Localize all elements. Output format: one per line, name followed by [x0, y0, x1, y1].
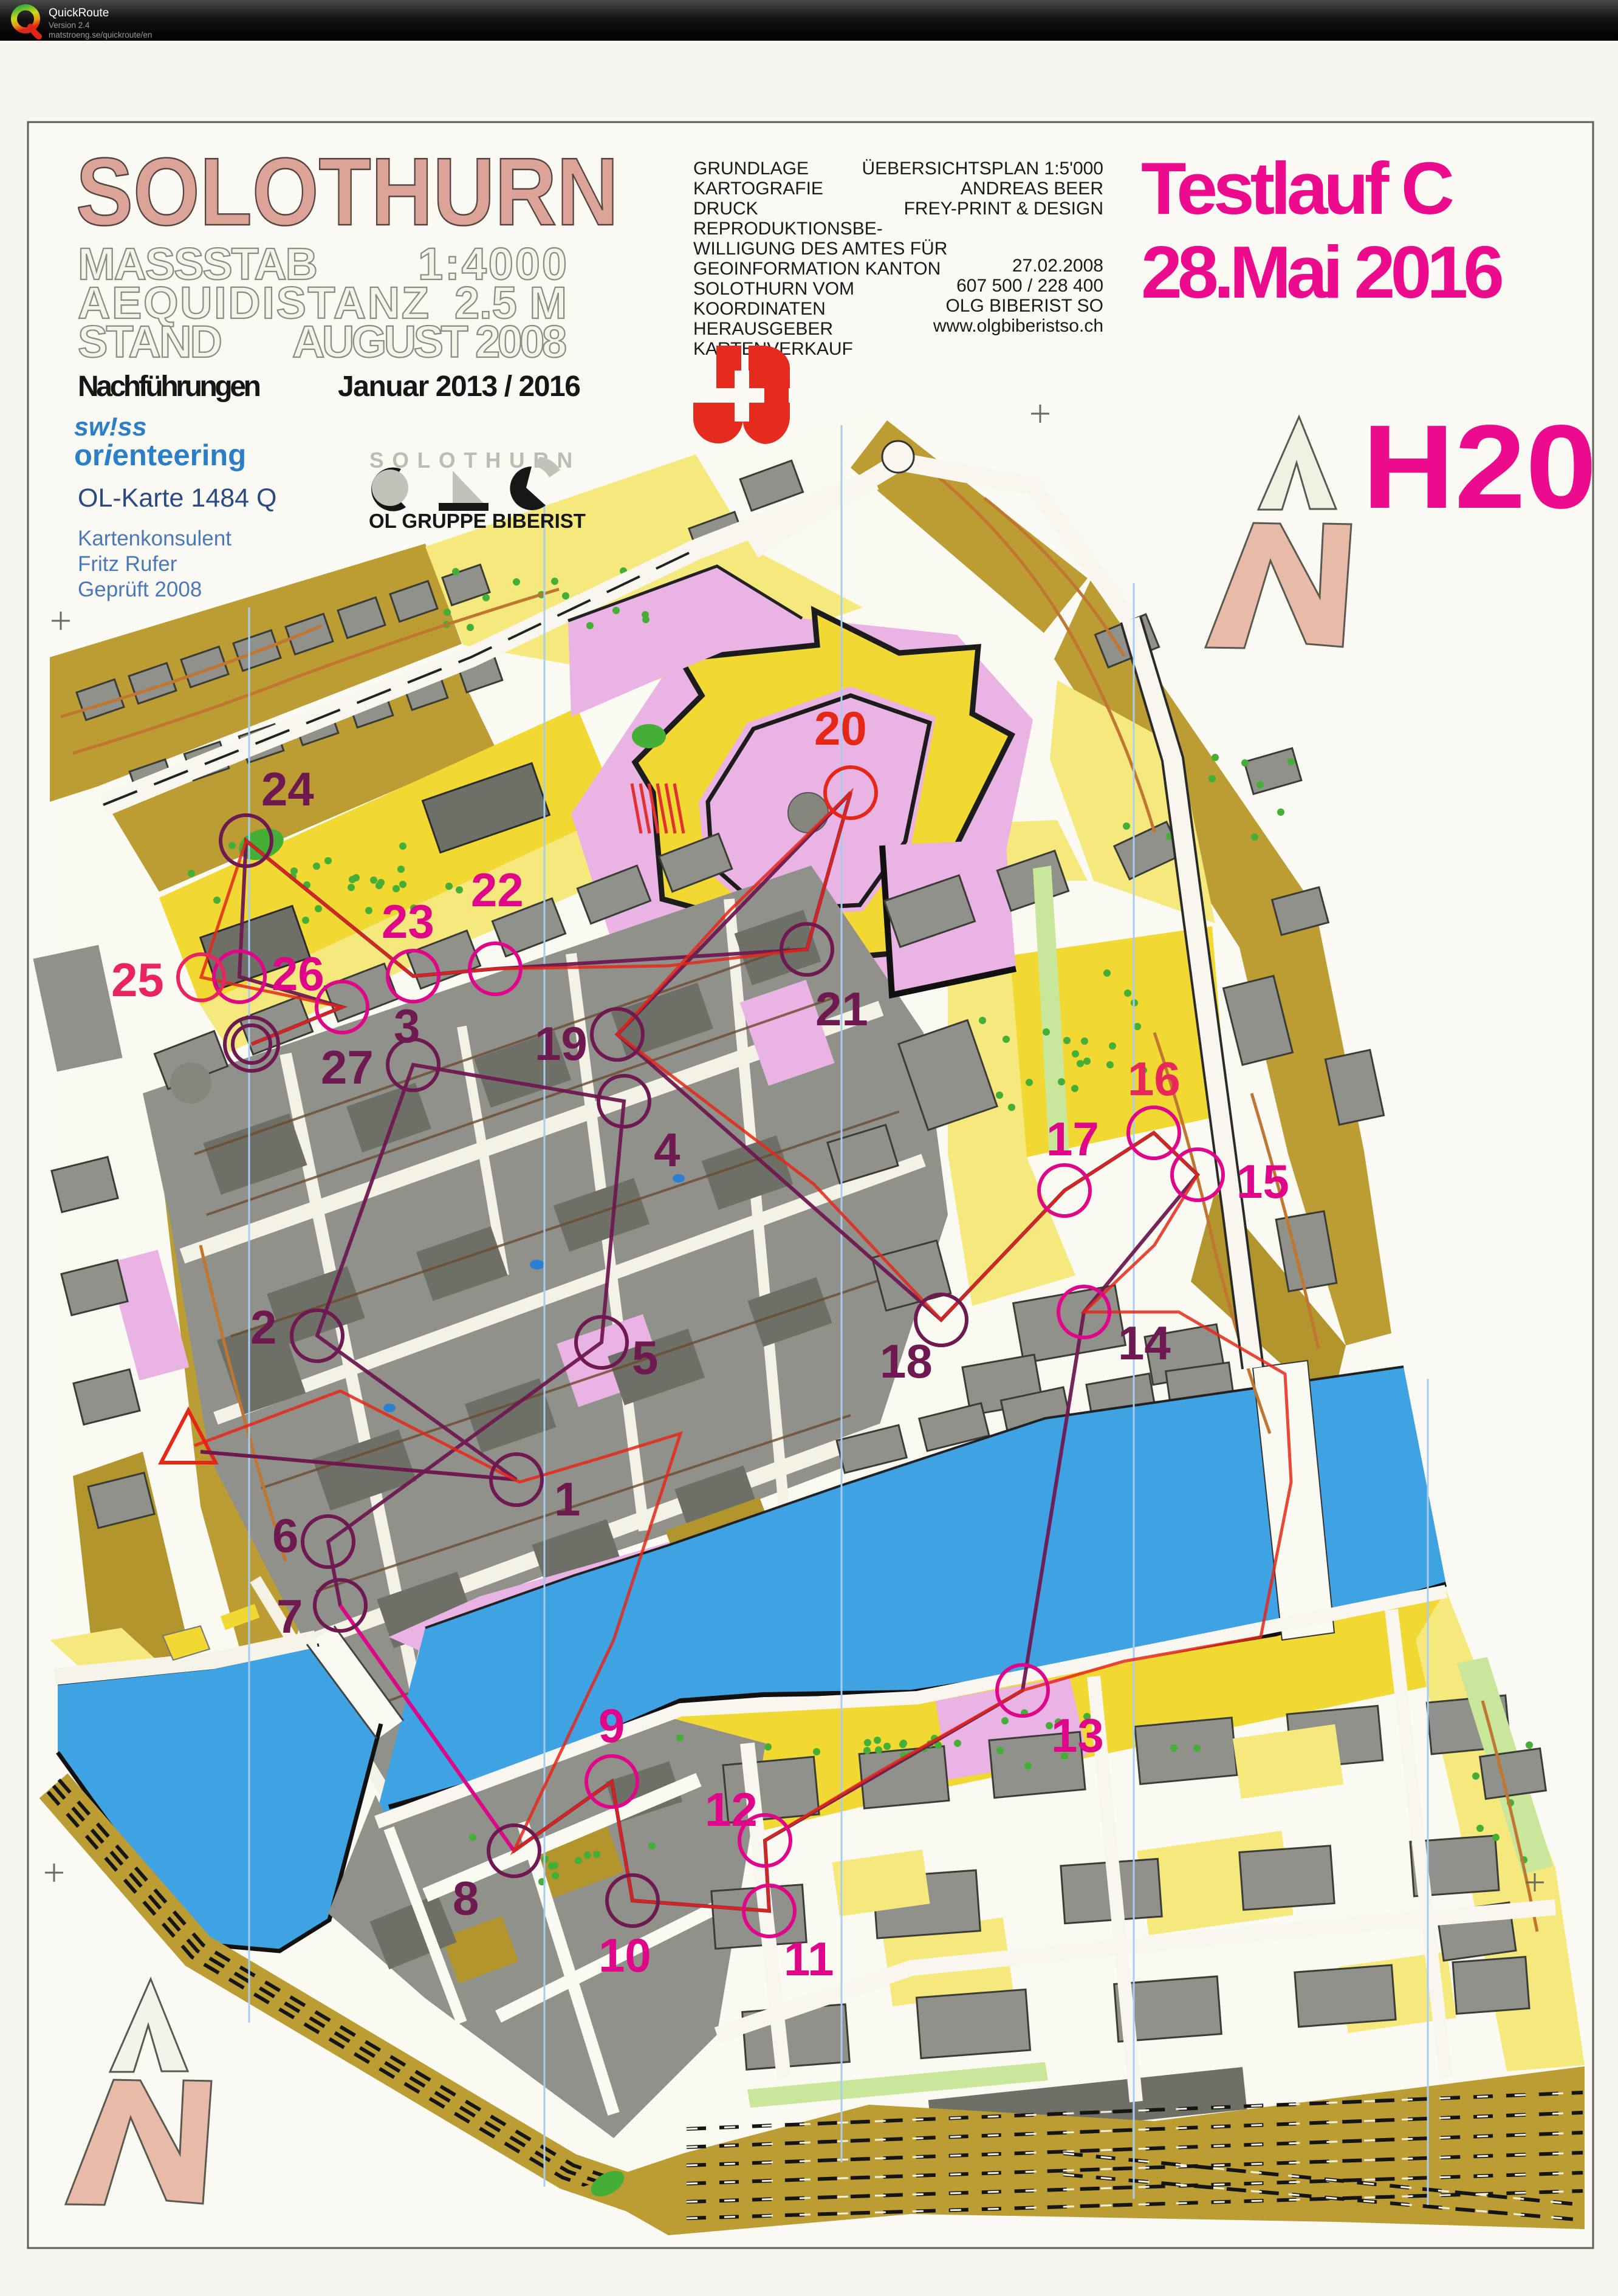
svg-text:OL GRUPPE BIBERIST: OL GRUPPE BIBERIST — [369, 510, 586, 532]
svg-text:7: 7 — [276, 1590, 303, 1643]
svg-text:25: 25 — [111, 953, 164, 1006]
svg-text:10: 10 — [598, 1929, 651, 1982]
svg-text:22: 22 — [471, 863, 524, 917]
svg-text:607 500 / 228 400: 607 500 / 228 400 — [956, 276, 1103, 296]
svg-text:14: 14 — [1118, 1316, 1171, 1370]
svg-text:4: 4 — [654, 1123, 680, 1177]
svg-text:8: 8 — [453, 1871, 479, 1925]
svg-text:28.Mai 2016: 28.Mai 2016 — [1141, 231, 1504, 313]
svg-text:KOORDINATEN: KOORDINATEN — [693, 299, 826, 319]
svg-text:Nachführungen: Nachführungen — [78, 371, 261, 403]
svg-text:KARTOGRAFIE: KARTOGRAFIE — [693, 179, 823, 199]
svg-text:16: 16 — [1128, 1052, 1181, 1105]
svg-text:27: 27 — [321, 1040, 374, 1094]
svg-text:18: 18 — [880, 1334, 933, 1388]
svg-text:2: 2 — [250, 1300, 276, 1354]
svg-text:sw!ss: sw!ss — [74, 412, 147, 442]
svg-text:HERAUSGEBER: HERAUSGEBER — [693, 319, 833, 339]
svg-text:21: 21 — [815, 982, 868, 1036]
svg-text:SOLOTHURN: SOLOTHURN — [76, 138, 619, 245]
svg-text:DRUCK: DRUCK — [693, 199, 758, 219]
svg-text:11: 11 — [784, 1932, 834, 1986]
svg-text:Januar 2013 / 2016: Januar 2013 / 2016 — [338, 371, 581, 403]
svg-text:Kartenkonsulent: Kartenkonsulent — [78, 527, 231, 550]
svg-text:26: 26 — [272, 947, 324, 1000]
svg-text:19: 19 — [535, 1017, 588, 1070]
svg-text:6: 6 — [272, 1509, 298, 1562]
svg-text:OLG BIBERIST SO: OLG BIBERIST SO — [945, 296, 1103, 316]
svg-text:STAND: STAND — [78, 316, 222, 367]
svg-text:Fritz Rufer: Fritz Rufer — [78, 552, 177, 576]
svg-text:OL-Karte 1484 Q: OL-Karte 1484 Q — [78, 483, 276, 513]
svg-text:orienteering: orienteering — [74, 439, 246, 472]
svg-text:20: 20 — [814, 702, 867, 755]
svg-text:3: 3 — [394, 999, 420, 1053]
svg-text:17: 17 — [1046, 1112, 1099, 1166]
svg-text:WILLIGUNG DES AMTES FÜR: WILLIGUNG DES AMTES FÜR — [693, 239, 947, 259]
svg-text:www.olgbiberistso.ch: www.olgbiberistso.ch — [933, 316, 1103, 336]
svg-text:matstroeng.se/quickroute/en: matstroeng.se/quickroute/en — [49, 30, 152, 39]
svg-text:GRUNDLAGE: GRUNDLAGE — [693, 159, 809, 179]
svg-text:5: 5 — [632, 1331, 658, 1384]
svg-text:Testlauf C: Testlauf C — [1141, 147, 1455, 230]
svg-text:QuickRoute: QuickRoute — [49, 7, 109, 19]
svg-text:13: 13 — [1051, 1709, 1104, 1762]
svg-text:24: 24 — [261, 762, 314, 816]
svg-text:Geprüft 2008: Geprüft 2008 — [78, 578, 202, 601]
svg-text:1: 1 — [554, 1472, 580, 1526]
svg-text:REPRODUKTIONSBE-: REPRODUKTIONSBE- — [693, 219, 883, 239]
svg-text:GEOINFORMATION KANTON: GEOINFORMATION KANTON — [693, 259, 941, 279]
svg-text:15: 15 — [1236, 1155, 1289, 1208]
svg-text:SOLOTHURN VOM: SOLOTHURN VOM — [693, 279, 854, 299]
svg-text:9: 9 — [598, 1699, 625, 1752]
svg-text:FREY-PRINT & DESIGN: FREY-PRINT & DESIGN — [904, 199, 1103, 219]
svg-text:ANDREAS BEER: ANDREAS BEER — [961, 179, 1103, 199]
svg-text:23: 23 — [382, 895, 434, 948]
svg-text:ÜEBERSICHTSPLAN 1:5'000: ÜEBERSICHTSPLAN 1:5'000 — [862, 159, 1103, 179]
svg-text:AUGUST 2008: AUGUST 2008 — [292, 316, 567, 367]
svg-text:Version 2.4: Version 2.4 — [49, 21, 90, 30]
svg-text:12: 12 — [705, 1783, 758, 1836]
svg-text:H20: H20 — [1362, 400, 1597, 533]
svg-text:27.02.2008: 27.02.2008 — [1012, 256, 1103, 276]
